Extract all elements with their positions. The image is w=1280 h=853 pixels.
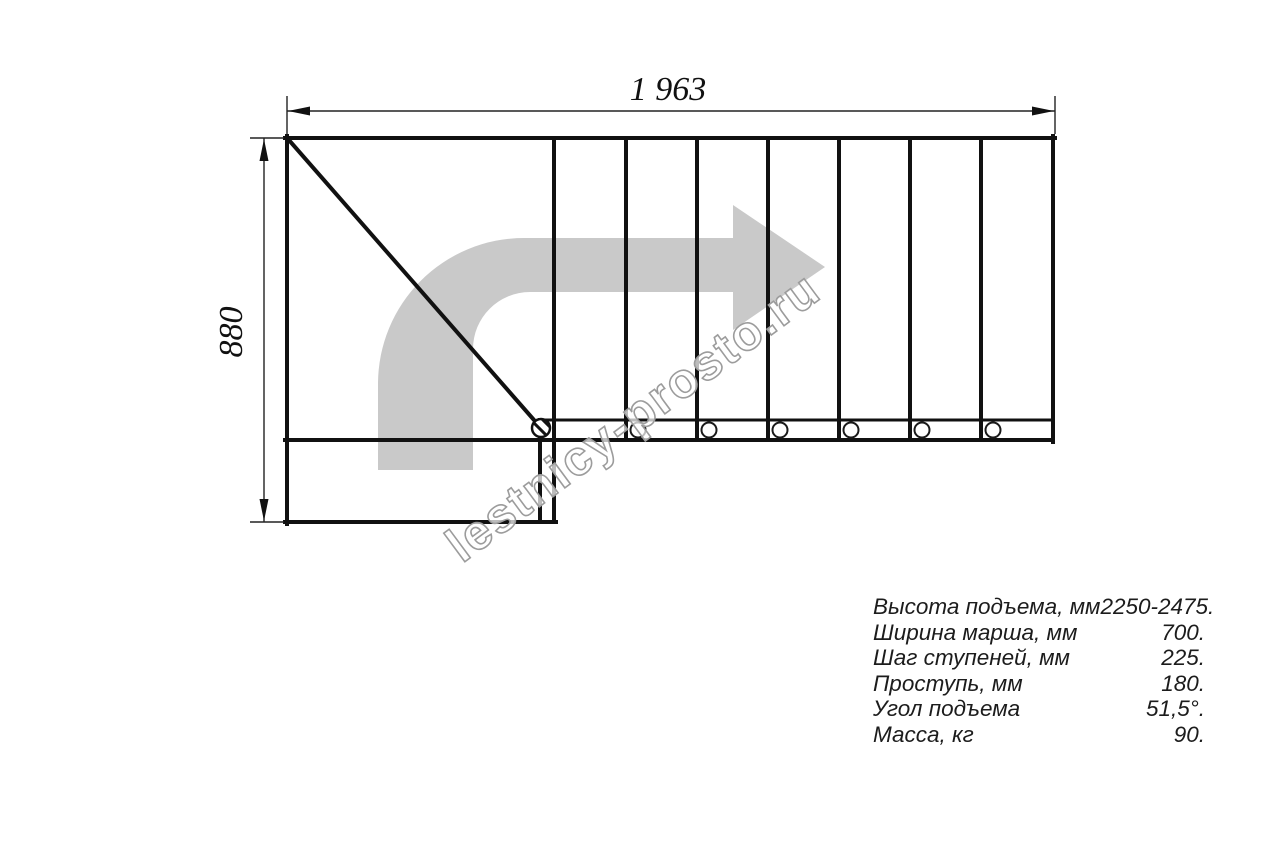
spec-row-step-pitch: Шаг ступеней, мм 225. [873,645,1205,671]
dim-arrowhead-left-icon [288,107,310,116]
spec-table: Высота подъема, мм 2250-2475. Ширина мар… [873,594,1205,747]
spec-value: 180. [1161,671,1205,697]
spec-row-mass: Масса, кг 90. [873,722,1205,748]
baluster-circle [773,423,788,438]
height-dimension-label: 880 [213,307,250,358]
spec-value: 90. [1174,722,1205,748]
spec-value: 225. [1161,645,1205,671]
baluster-circle [986,423,1001,438]
dimension-width: 1 963 [287,71,1055,134]
spec-value: 51,5°. [1146,696,1205,722]
spec-row-angle: Угол подъема 51,5°. [873,696,1205,722]
dim-arrowhead-up-icon [260,139,269,161]
spec-label: Масса, кг [873,722,974,748]
spec-label: Высота подъема, мм [873,594,1100,620]
dim-arrowhead-down-icon [260,499,269,521]
spec-value: 700. [1161,620,1205,646]
spec-row-flight-width: Ширина марша, мм 700. [873,620,1205,646]
baluster-circle [702,423,717,438]
baluster-circle [844,423,859,438]
watermark-text: lestnicy-prosto.ru [437,262,831,573]
width-dimension-label: 1 963 [630,71,707,108]
spec-label: Угол подъема [873,696,1020,722]
spec-row-tread: Проступь, мм 180. [873,671,1205,697]
spec-row-height: Высота подъема, мм 2250-2475. [873,594,1205,620]
baluster-circle [915,423,930,438]
spec-label: Ширина марша, мм [873,620,1077,646]
spec-label: Шаг ступеней, мм [873,645,1070,671]
dimension-height: 880 [213,138,284,522]
spec-label: Проступь, мм [873,671,1023,697]
drawing-canvas: 1 963 880 lestnicy-prosto.ru Высота подъ… [0,0,1280,853]
dim-arrowhead-right-icon [1032,107,1054,116]
spec-value: 2250-2475. [1100,594,1214,620]
